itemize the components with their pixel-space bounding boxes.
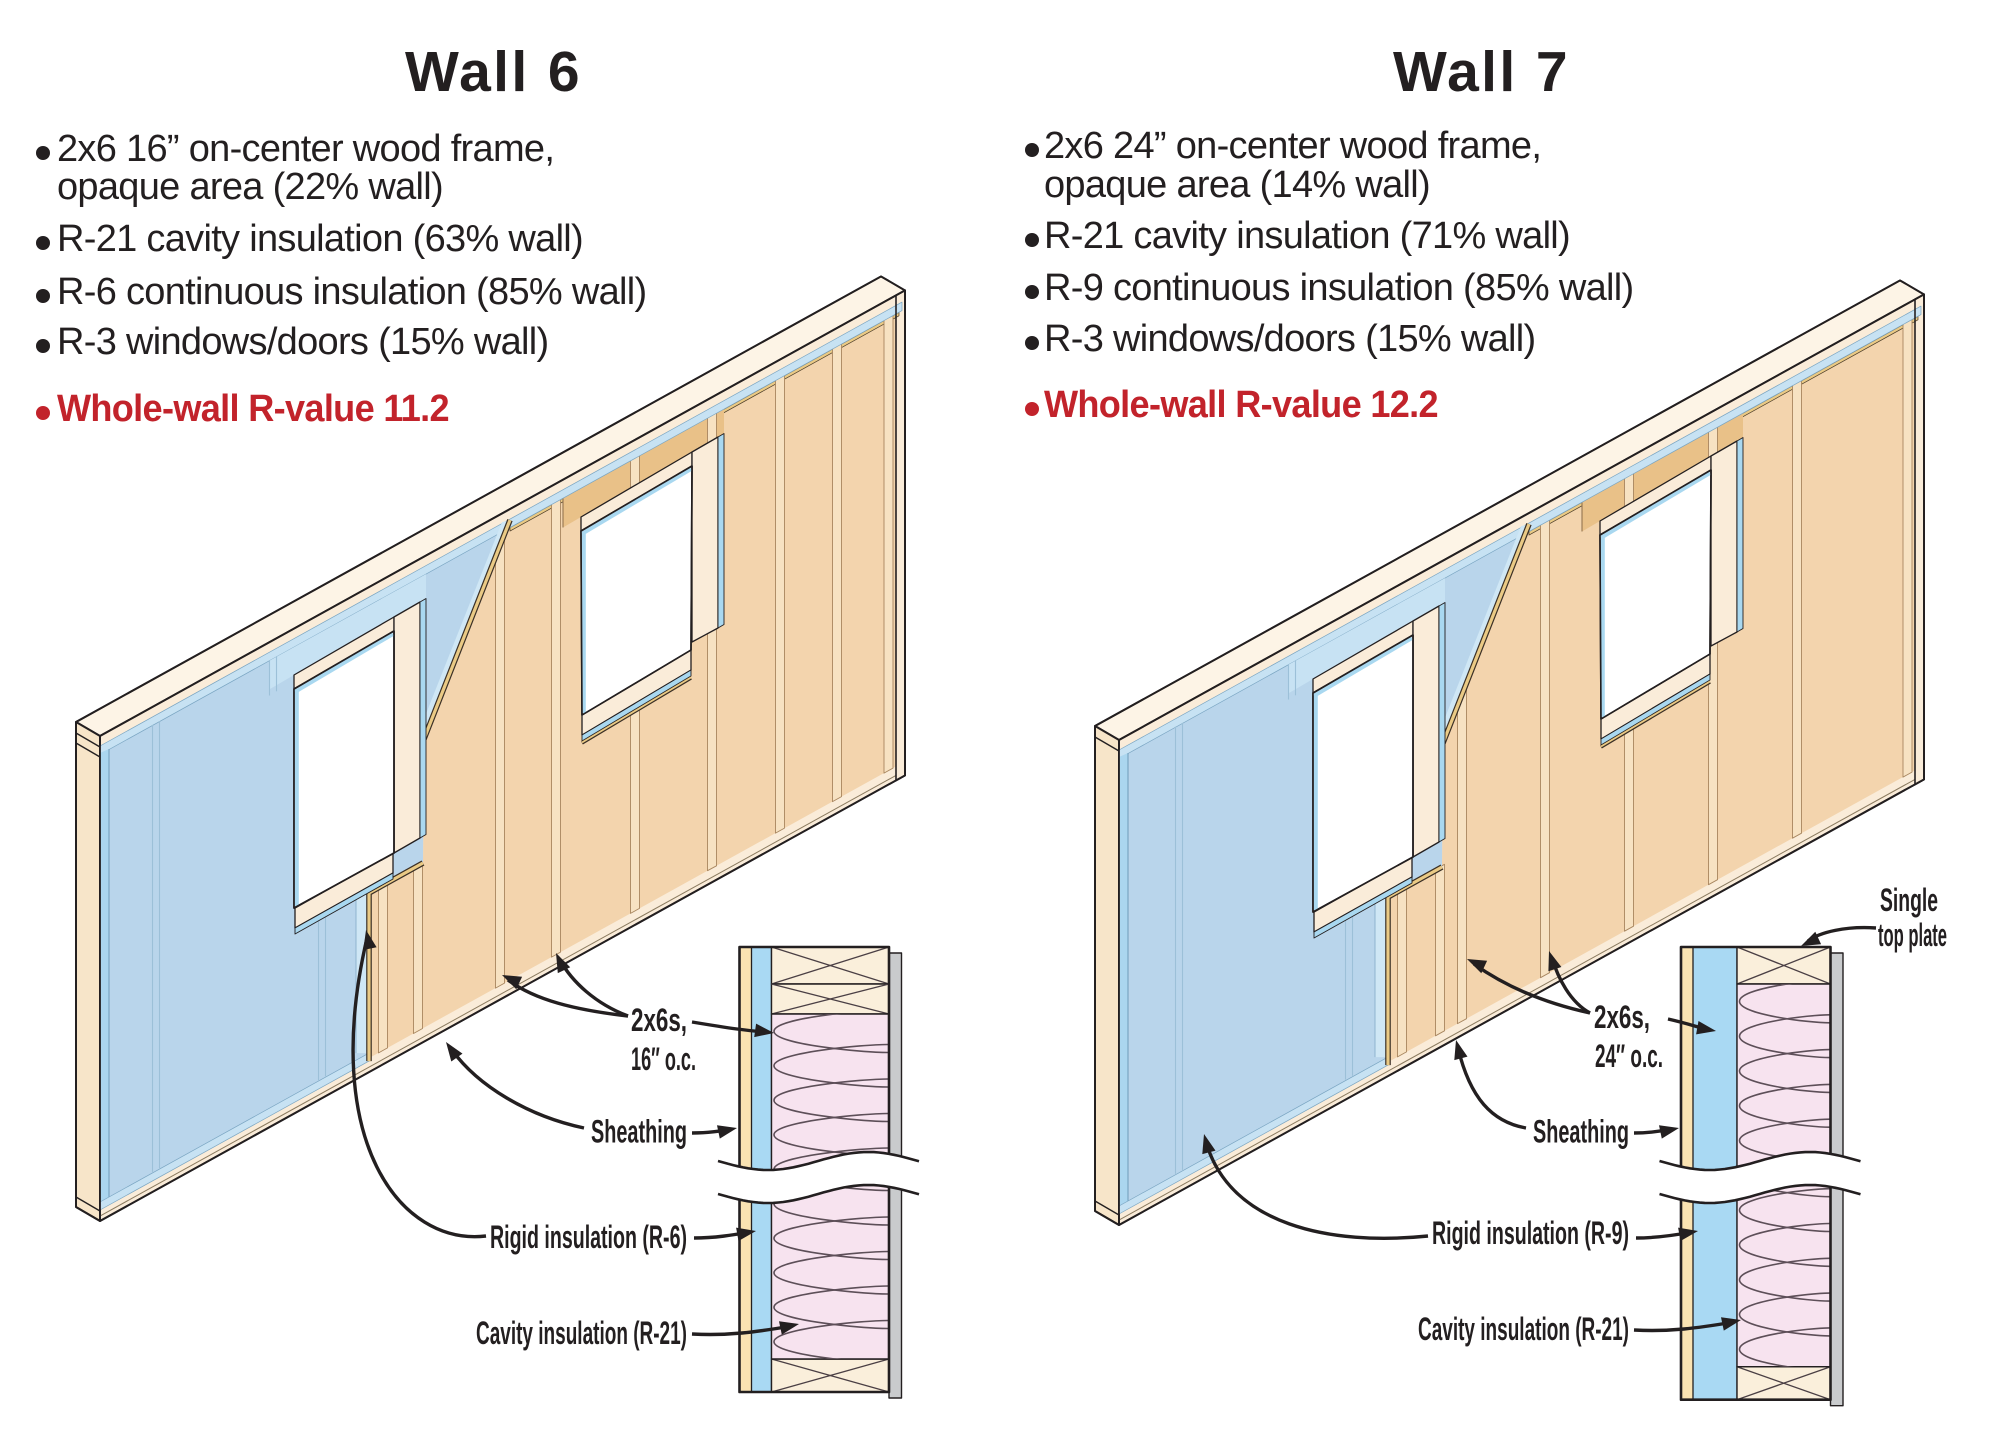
- svg-text:Rigid insulation (R-6): Rigid insulation (R-6): [490, 1219, 687, 1255]
- svg-text:Single: Single: [1880, 882, 1938, 918]
- svg-text:2x6s,: 2x6s,: [1594, 999, 1650, 1035]
- svg-text:2x6s,: 2x6s,: [631, 1002, 687, 1038]
- svg-text:24″ o.c.: 24″ o.c.: [1595, 1038, 1663, 1074]
- svg-text:Rigid insulation (R-9): Rigid insulation (R-9): [1432, 1215, 1629, 1251]
- svg-text:Cavity insulation (R-21): Cavity insulation (R-21): [1418, 1311, 1629, 1347]
- svg-text:Sheathing: Sheathing: [591, 1114, 687, 1150]
- svg-text:top plate: top plate: [1878, 917, 1947, 953]
- svg-text:16″ o.c.: 16″ o.c.: [631, 1041, 696, 1077]
- svg-text:Cavity insulation (R-21): Cavity insulation (R-21): [476, 1315, 687, 1351]
- svg-text:Sheathing: Sheathing: [1533, 1114, 1629, 1150]
